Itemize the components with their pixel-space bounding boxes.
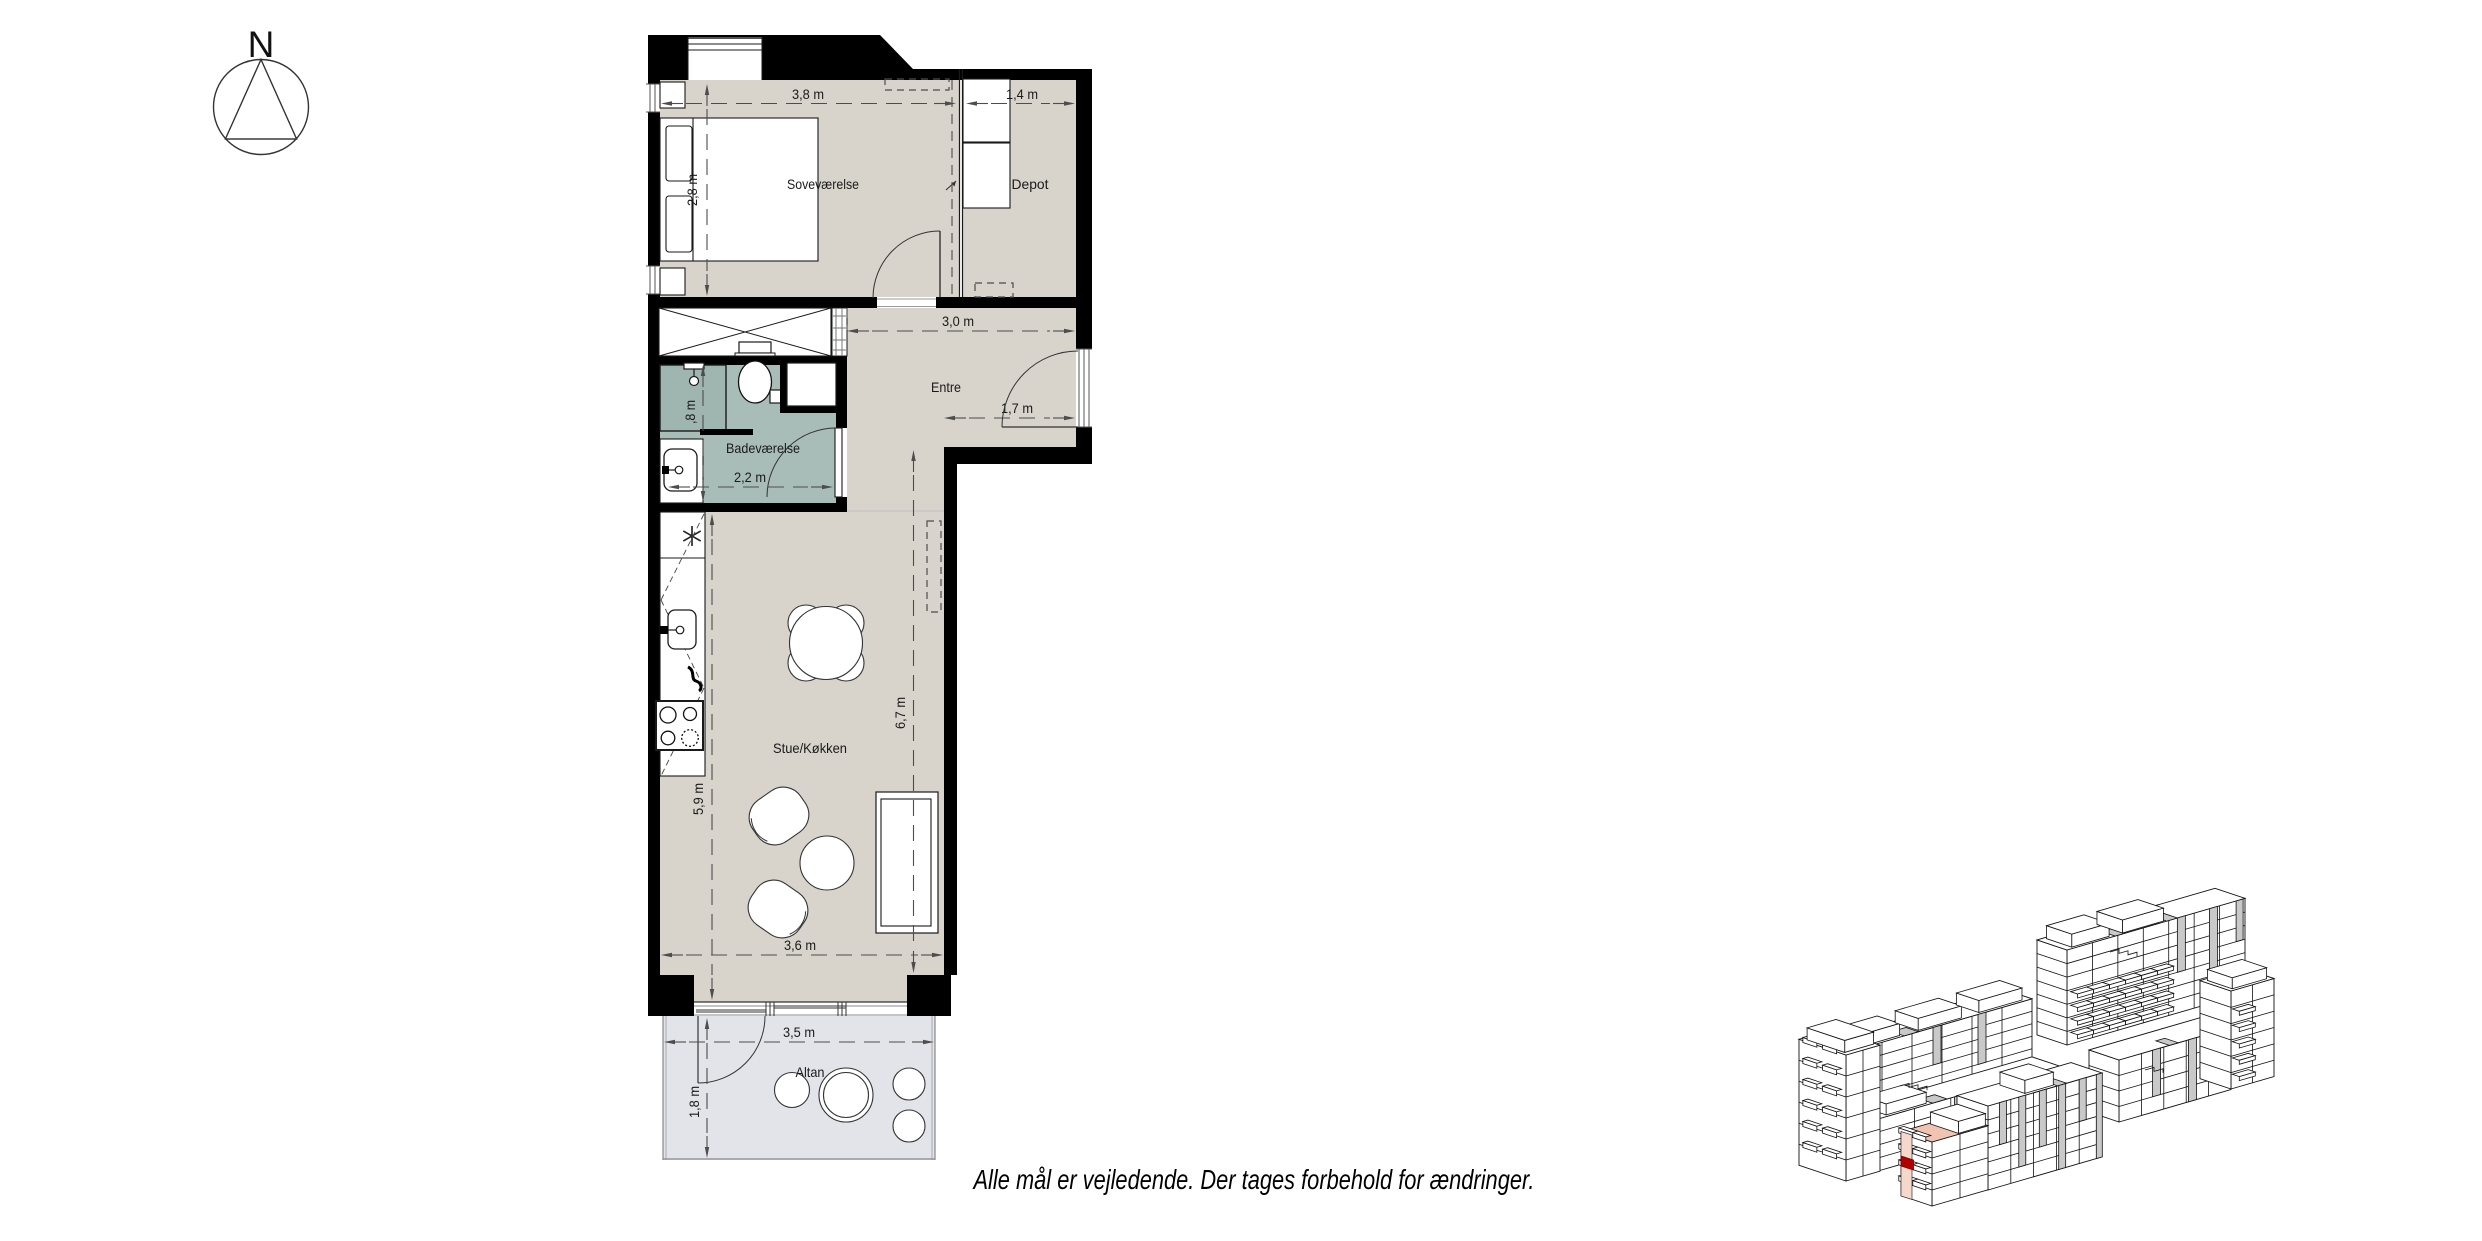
svg-text:Soveværelse: Soveværelse: [787, 176, 859, 192]
svg-text:6,7 m: 6,7 m: [893, 697, 908, 729]
svg-text:2,8 m: 2,8 m: [685, 174, 700, 206]
svg-text:3,0 m: 3,0 m: [942, 314, 974, 329]
svg-text:5,9 m: 5,9 m: [691, 783, 706, 815]
svg-text:Alle mål er vejledende. Der ta: Alle mål er vejledende. Der tages forbeh…: [972, 1164, 1535, 1195]
svg-text:Altan: Altan: [796, 1064, 825, 1080]
svg-text:Depot: Depot: [1012, 176, 1049, 192]
svg-text:,8 m: ,8 m: [683, 400, 698, 424]
svg-text:3,5 m: 3,5 m: [783, 1025, 815, 1040]
svg-text:3,6 m: 3,6 m: [784, 938, 816, 953]
svg-text:1,8 m: 1,8 m: [687, 1086, 702, 1118]
svg-text:N: N: [248, 24, 275, 65]
svg-text:Entre: Entre: [931, 379, 961, 395]
svg-text:Stue/Køkken: Stue/Køkken: [773, 740, 847, 756]
svg-text:2,2 m: 2,2 m: [734, 470, 766, 485]
svg-text:1,4 m: 1,4 m: [1006, 87, 1038, 102]
svg-text:Badeværelse: Badeværelse: [726, 440, 800, 456]
svg-text:3,8 m: 3,8 m: [792, 87, 824, 102]
